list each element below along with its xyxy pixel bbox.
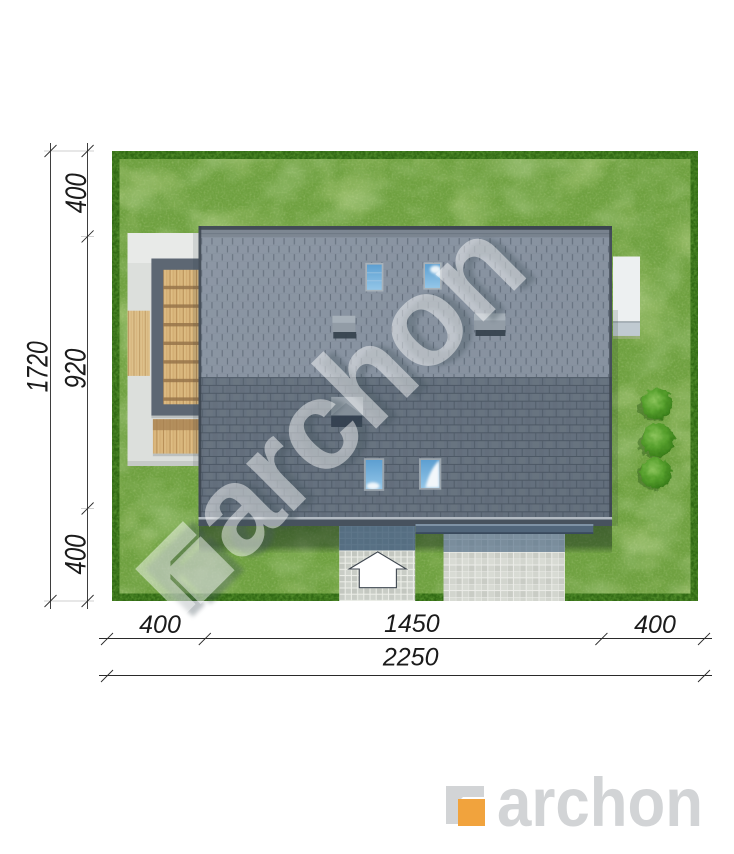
svg-text:1450: 1450 — [384, 610, 440, 638]
svg-text:400: 400 — [634, 611, 676, 639]
svg-text:400: 400 — [60, 173, 93, 213]
svg-text:archon: archon — [497, 764, 703, 841]
svg-text:2250: 2250 — [382, 644, 439, 672]
svg-text:400: 400 — [139, 611, 181, 639]
svg-text:1720: 1720 — [22, 341, 55, 392]
svg-text:920: 920 — [60, 348, 93, 388]
svg-text:400: 400 — [60, 534, 93, 574]
